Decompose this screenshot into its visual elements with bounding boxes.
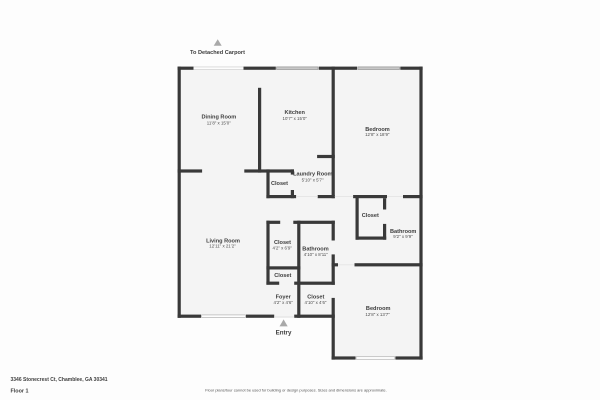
svg-text:Closet: Closet bbox=[274, 273, 291, 279]
svg-text:Closet: Closet bbox=[362, 213, 379, 219]
svg-text:Floor plans/tour cannot be use: Floor plans/tour cannot be used for buil… bbox=[205, 388, 386, 393]
svg-text:Floor 1: Floor 1 bbox=[11, 388, 29, 394]
svg-text:11’8" x 15’0": 11’8" x 15’0" bbox=[207, 120, 231, 125]
svg-text:Entry: Entry bbox=[276, 330, 292, 337]
svg-text:4’2" x 6’9": 4’2" x 6’9" bbox=[272, 245, 292, 250]
svg-text:4’10" x 8’11": 4’10" x 8’11" bbox=[304, 252, 328, 257]
svg-text:To Detached Carport: To Detached Carport bbox=[190, 50, 245, 56]
svg-text:10’7" x 15’0": 10’7" x 15’0" bbox=[283, 116, 308, 121]
svg-text:9’2" x 9’9": 9’2" x 9’9" bbox=[393, 234, 413, 239]
svg-text:5’10" x 5’7": 5’10" x 5’7" bbox=[302, 178, 324, 183]
svg-text:12’8" x 13’7": 12’8" x 13’7" bbox=[365, 312, 390, 317]
svg-text:3346 Stonecrest Ct, Chamblee,: 3346 Stonecrest Ct, Chamblee, GA 30341 bbox=[11, 377, 108, 383]
svg-text:12’11" x 21’2": 12’11" x 21’2" bbox=[209, 244, 236, 249]
svg-text:4’10" x 4’6": 4’10" x 4’6" bbox=[305, 300, 327, 305]
svg-text:4’2" x 4’6": 4’2" x 4’6" bbox=[273, 300, 293, 305]
svg-text:Kitchen: Kitchen bbox=[284, 110, 305, 116]
svg-text:Closet: Closet bbox=[271, 181, 288, 187]
svg-text:12’8" x 18’9": 12’8" x 18’9" bbox=[365, 132, 390, 137]
